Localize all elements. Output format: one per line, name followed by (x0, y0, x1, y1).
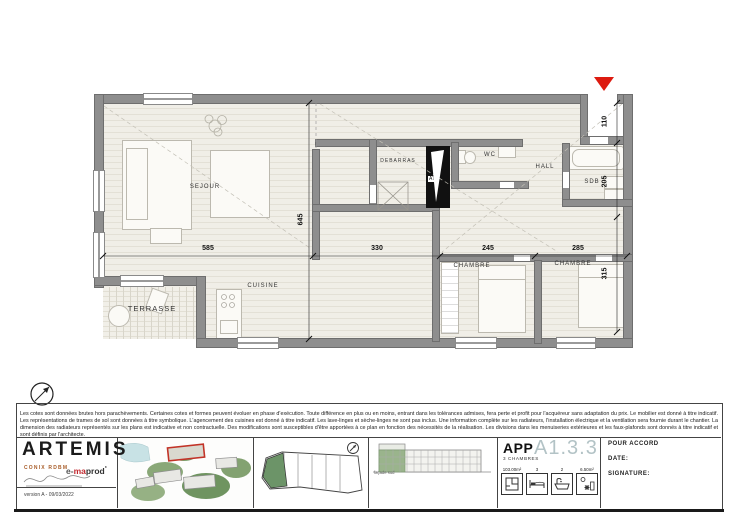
bath-icon (554, 477, 570, 491)
wall-chambre-divider (535, 261, 541, 343)
door-entrance (590, 137, 608, 144)
room-label-sejour: SEJOUR (190, 184, 220, 190)
dim-205: 205 (602, 167, 609, 197)
toilet-bowl (464, 151, 476, 164)
date-label: DATE: (608, 456, 659, 462)
wall-notch-left (581, 95, 587, 143)
disclaimer-text: Les cotes sont données brutes hors parac… (20, 411, 718, 439)
aerial-site-render (118, 438, 252, 507)
divider-4 (497, 437, 498, 508)
apartment-stats: 103.00m² 3 2 6.50m² (501, 467, 598, 495)
room-label-chambre2: CHAMBRE (554, 261, 591, 267)
sheet-bottom-border (14, 509, 724, 512)
window-left-1 (93, 170, 105, 212)
wall-wc-bottom (452, 182, 528, 188)
door-wc (500, 182, 514, 188)
shaft-label: AT2 (428, 176, 439, 182)
signature-label: SIGNATURE: (608, 471, 659, 477)
drawing-sheet: AT2 (0, 0, 736, 521)
stat-bedrooms: 3 (526, 467, 548, 495)
sofa (126, 148, 148, 220)
room-label-debarras: DEBARRAS (380, 158, 416, 164)
window-bottom-1 (237, 337, 279, 349)
pour-accord-label: POUR ACCORD (608, 441, 659, 447)
window-top-1 (143, 93, 193, 105)
terrace-table (108, 305, 130, 327)
door-debarras (370, 185, 376, 203)
room-label-hall: HALL (535, 164, 554, 170)
window-left-2 (93, 232, 105, 278)
door-sdb (563, 172, 569, 188)
room-label-wc: WC (484, 152, 496, 158)
room-label-sdb: SDB (584, 179, 599, 185)
app-code: A1.3.3 (534, 437, 598, 460)
version-label: version A - 09/03/2022 (24, 492, 74, 498)
room-label-terrasse: TERRASSE (128, 304, 176, 313)
dim-285: 285 (572, 245, 584, 252)
wall-corridor (313, 205, 439, 211)
wall-chambre1-left (433, 211, 439, 341)
kitchen-sink (220, 320, 238, 334)
dim-110: 110 (602, 107, 609, 137)
wall-sdb-bottom (563, 200, 632, 206)
stat-area: 103.00m² (501, 467, 523, 495)
window-bottom-2 (455, 337, 497, 349)
wardrobe-1 (441, 262, 459, 334)
compass-icon (31, 383, 53, 405)
north-triangle-icon (594, 77, 614, 91)
emaprod-logo: e-maprod° (66, 466, 107, 476)
bathtub-inner (572, 149, 620, 167)
divider-5 (600, 437, 601, 508)
facade-label: façade sud (374, 470, 395, 475)
room-label-cuisine: CUISINE (247, 283, 278, 289)
wall-right (624, 95, 632, 347)
artemis-logo: ARTEMIS (22, 439, 129, 461)
stat-bathrooms: 2 (551, 467, 573, 495)
window-terrace-door (120, 275, 164, 287)
key-plan (254, 438, 367, 507)
door-chambre1 (514, 255, 530, 261)
divider-3 (368, 437, 369, 508)
window-bottom-3 (556, 337, 596, 349)
terrace-icon (579, 476, 595, 492)
dim-315: 315 (602, 259, 609, 289)
wc-basin (498, 146, 516, 158)
dim-330: 330 (371, 245, 383, 252)
wall-debarras-top (316, 140, 522, 146)
app-type: APP (503, 440, 533, 456)
room-label-chambre1: CHAMBRE (453, 263, 490, 269)
dim-245: 245 (482, 245, 494, 252)
approval-block: POUR ACCORD DATE: SIGNATURE: (608, 441, 659, 486)
floorplan-icon (505, 477, 519, 491)
bed-icon (529, 477, 545, 491)
dim-645: 645 (298, 205, 305, 235)
divider-2 (253, 437, 254, 508)
wall-terrace-cuisine (197, 277, 205, 347)
tv-unit (150, 228, 182, 244)
keyplan-compass-icon (348, 443, 359, 454)
dim-585: 585 (202, 245, 214, 252)
stat-terrace: 6.50m² (576, 467, 598, 495)
